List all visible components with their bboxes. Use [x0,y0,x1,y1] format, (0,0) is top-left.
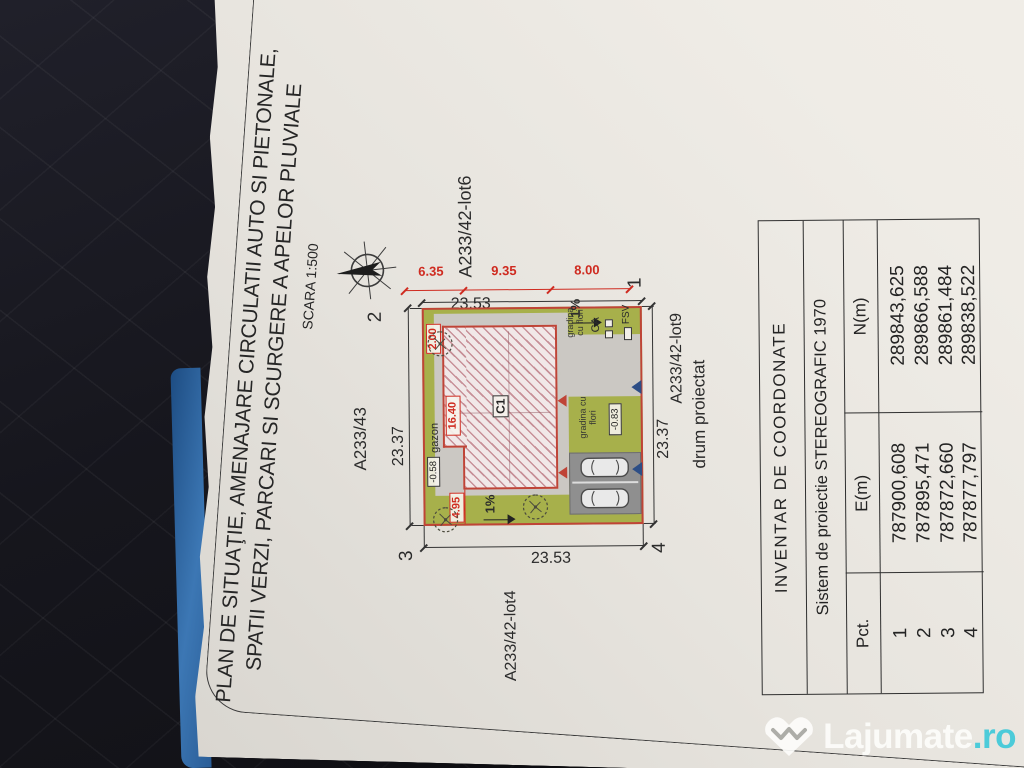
corner-3: 3 [396,550,418,561]
tree-icon [425,329,455,359]
parcel-label-bottom: A233/42-lot9 [668,313,687,404]
slope-label: 1% [482,494,497,513]
table-row-e: 787872,660 [936,413,959,573]
walkway-corridor [560,334,641,397]
corner-4: 4 [649,542,671,553]
table-row-e: 787877,797 [959,412,982,572]
watermark-brand: Lajumate [823,717,973,756]
paper-document: PLAN DE SITUAŢIE, AMENAJARE CIRCULATII A… [192,0,1024,768]
compass-north-icon [332,235,403,306]
table-subtitle: Sistem de proiectie STEREOGRAFIC 1970 [811,221,834,694]
corner-2: 2 [365,312,387,323]
watermark-tld: .ro [973,717,1016,756]
fsv-label: FSV [621,305,632,325]
lawn-level: -0.58 [427,457,440,487]
tree-icon [430,505,460,535]
parking-divider [572,482,638,484]
dim-building-width: 16.40 [446,396,461,436]
dim-bottom: 23.37 [655,419,673,459]
entrance-marker-icon [558,395,567,407]
table-row-e: 787895,471 [912,413,935,573]
dim-right-seg2: 9.35 [491,263,516,278]
table-row-e: 787900,608 [888,413,911,573]
lawn-label: gazon [429,423,441,453]
parcel-label-right: A233/42-lot6 [455,175,477,277]
parcel-label-left: A233/42-lot4 [502,590,521,681]
road-label: drum proiectat [689,360,710,469]
table-title: INVENTAR DE COORDONATE [769,221,793,694]
table-row-pct: 3 [938,572,961,692]
fsv-box-icon [624,327,632,340]
table-row-n: 289866,588 [911,218,935,413]
tree-icon [520,492,550,522]
table-header-e: E(m) [852,453,873,533]
building-label: C1 [493,395,509,417]
table-row-n: 289838,522 [958,217,982,412]
dim-line-right-red [405,288,630,291]
photo-scene: PLAN DE SITUAŢIE, AMENAJARE CIRCULATII A… [0,0,1024,768]
entrance-marker-icon [558,467,567,479]
access-marker-icon [631,380,641,394]
dim-right-seg3: 8.00 [574,262,599,277]
parking-area [569,452,642,515]
dim-left: 23.53 [531,550,571,568]
table-row-pct: 1 [890,573,913,693]
car-icon [577,455,633,479]
table-row-pct: 2 [914,573,937,693]
lajumate-logo-icon [763,716,815,758]
car-icon [577,486,633,510]
table-row-pct: 4 [961,572,984,692]
table-row-n: 289861,484 [935,218,959,413]
watermark: Lajumate.ro [763,716,1016,758]
dim-right-seg1: 6.35 [418,264,443,279]
table-header-pct: Pct. [853,593,874,673]
corner-1: 1 [624,277,646,288]
dim-line-left [424,545,644,548]
table-header-n: N(m) [850,276,871,356]
slope-arrowhead [508,514,516,524]
slope-arrow-icon [484,519,510,521]
parcel-label-top: A233/43 [351,407,372,471]
table-row-n: 289843,625 [887,218,911,413]
access-marker-icon [632,462,642,476]
ca-label: CA [590,317,602,332]
garden-label: gradina cu flori [579,394,599,440]
utility-box-icon [605,330,613,338]
utility-box-icon [605,319,613,327]
garden-level: -0.83 [609,403,622,435]
dim-line-top [408,308,411,526]
dim-top: 23.37 [390,426,408,466]
coordinates-table: INVENTAR DE COORDONATE Sistem de proiect… [758,218,984,695]
garden-label: gradina cu flori [566,305,586,341]
dim-line-bottom [652,306,655,524]
